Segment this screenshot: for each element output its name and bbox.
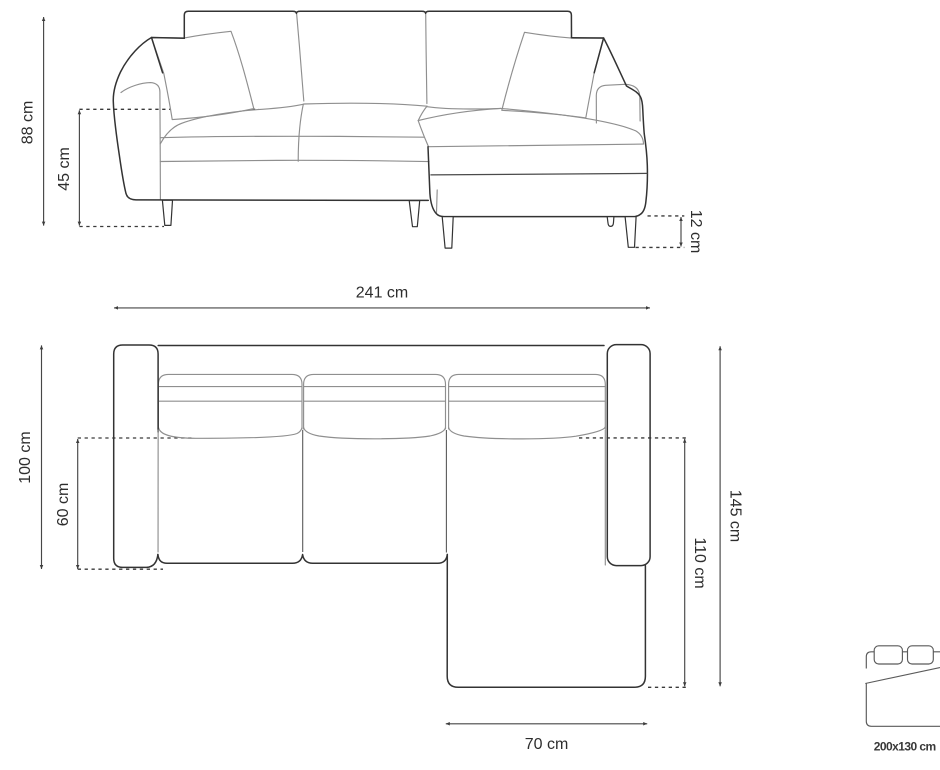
svg-text:145 cm: 145 cm (726, 490, 743, 542)
svg-text:110 cm: 110 cm (691, 537, 708, 588)
svg-text:88 cm: 88 cm (20, 101, 37, 145)
svg-text:241 cm: 241 cm (356, 284, 408, 301)
svg-text:45 cm: 45 cm (56, 147, 73, 191)
svg-text:200x130 cm: 200x130 cm (874, 740, 936, 754)
svg-text:70 cm: 70 cm (525, 736, 569, 753)
svg-text:100 cm: 100 cm (17, 431, 34, 483)
svg-text:12 cm: 12 cm (687, 210, 704, 254)
svg-text:60 cm: 60 cm (55, 483, 72, 527)
